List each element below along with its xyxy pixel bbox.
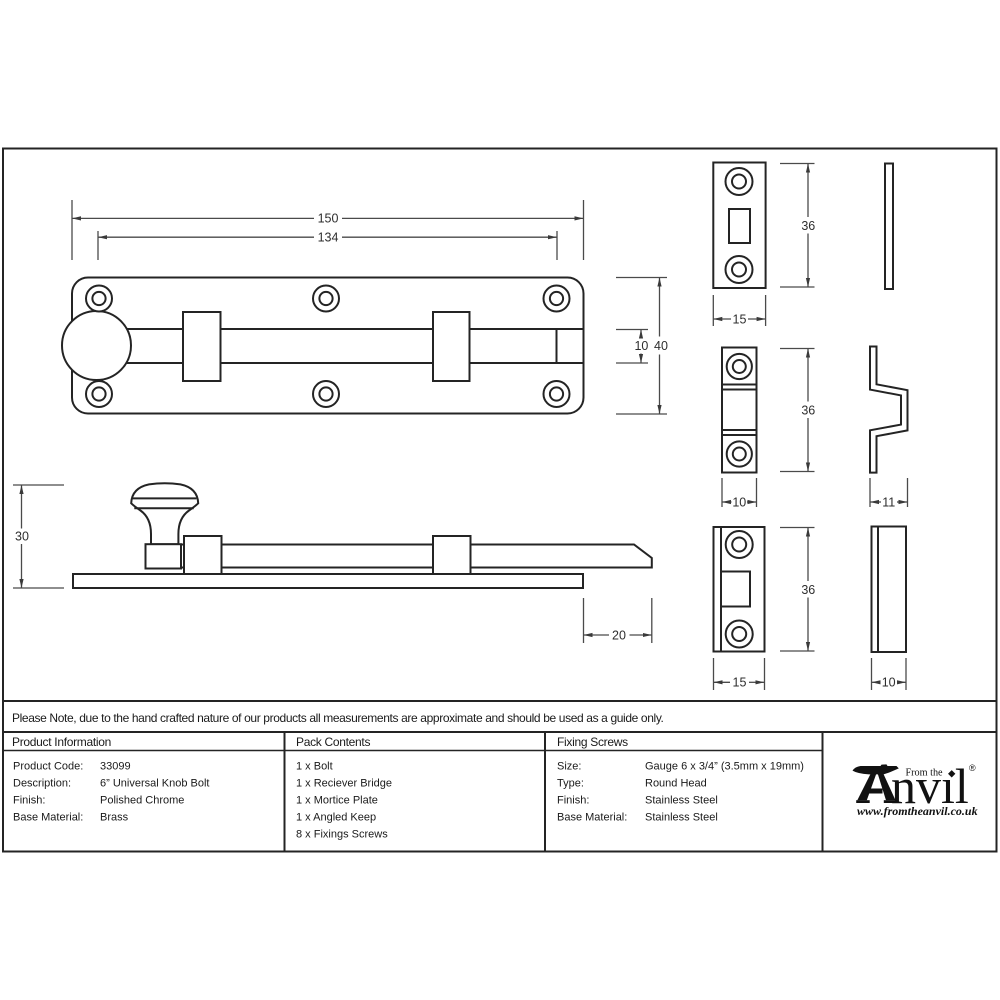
svg-text:134: 134 [318, 230, 339, 244]
svg-text:36: 36 [801, 403, 815, 417]
svg-text:8 x Fixings Screws: 8 x Fixings Screws [296, 829, 388, 841]
svg-text:1 x Mortice Plate: 1 x Mortice Plate [296, 795, 378, 807]
svg-text:Base Material:: Base Material: [557, 812, 627, 824]
svg-text:Product Information: Product Information [12, 735, 111, 749]
svg-text:33099: 33099 [100, 761, 131, 773]
svg-text:Stainless Steel: Stainless Steel [645, 795, 718, 807]
svg-text:36: 36 [801, 219, 815, 233]
svg-text:Base Material:: Base Material: [13, 812, 83, 824]
svg-text:Gauge 6 x 3/4” (3.5mm x 19mm): Gauge 6 x 3/4” (3.5mm x 19mm) [645, 761, 804, 773]
svg-text:1 x Angled Keep: 1 x Angled Keep [296, 812, 376, 824]
svg-text:1 x Reciever Bridge: 1 x Reciever Bridge [296, 778, 392, 790]
svg-text:10: 10 [732, 495, 746, 509]
svg-text:Type:: Type: [557, 778, 584, 790]
svg-text:Size:: Size: [557, 761, 581, 773]
svg-text:150: 150 [318, 212, 339, 226]
svg-text:From the: From the [906, 768, 944, 779]
svg-text:30: 30 [15, 530, 29, 544]
svg-text:Description:: Description: [13, 778, 71, 790]
svg-text:www.fromtheanvil.co.uk: www.fromtheanvil.co.uk [857, 804, 978, 818]
svg-text:15: 15 [733, 312, 747, 326]
svg-text:40: 40 [654, 339, 668, 353]
svg-text:6” Universal Knob Bolt: 6” Universal Knob Bolt [100, 778, 209, 790]
svg-text:10: 10 [882, 676, 896, 690]
svg-text:Pack Contents: Pack Contents [296, 735, 370, 749]
svg-text:11: 11 [882, 495, 895, 509]
svg-text:Product Code:: Product Code: [13, 761, 83, 773]
svg-text:Polished Chrome: Polished Chrome [100, 795, 184, 807]
svg-text:1 x Bolt: 1 x Bolt [296, 761, 333, 773]
svg-text:®: ® [969, 763, 976, 773]
svg-text:Finish:: Finish: [557, 795, 589, 807]
svg-text:20: 20 [612, 628, 626, 642]
svg-text:36: 36 [801, 583, 815, 597]
svg-text:Fixing Screws: Fixing Screws [557, 735, 628, 749]
svg-text:Please Note, due to the hand c: Please Note, due to the hand crafted nat… [12, 711, 664, 725]
svg-text:Finish:: Finish: [13, 795, 45, 807]
svg-text:Round Head: Round Head [645, 778, 707, 790]
svg-text:10: 10 [634, 339, 648, 353]
svg-text:Stainless Steel: Stainless Steel [645, 812, 718, 824]
svg-text:15: 15 [733, 676, 747, 690]
svg-text:Brass: Brass [100, 812, 129, 824]
